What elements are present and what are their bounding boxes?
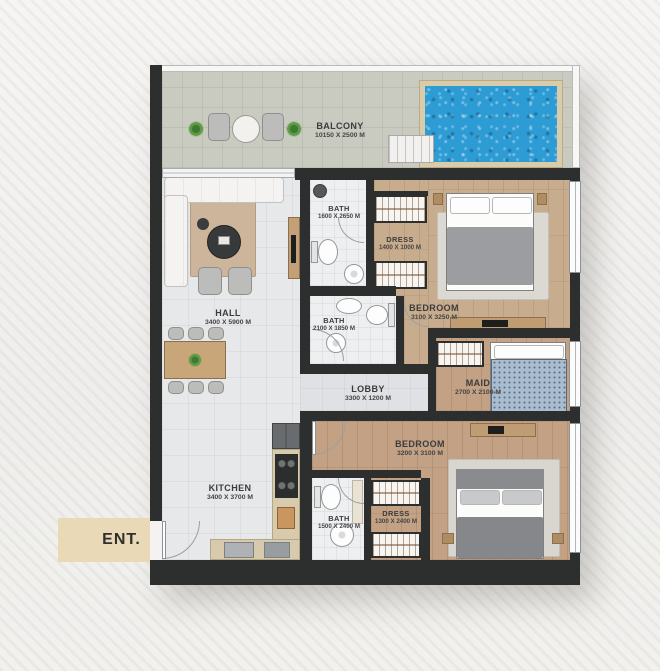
- wall: [300, 364, 436, 374]
- sink-icon: [344, 264, 364, 284]
- wall: [310, 286, 396, 296]
- wall: [150, 65, 162, 521]
- entrance-opening: [150, 521, 162, 560]
- nightstand: [537, 193, 547, 205]
- patio-chair-icon: [208, 113, 230, 141]
- wall: [428, 338, 436, 411]
- nightstand: [433, 193, 443, 205]
- coffee-table-item-icon: [218, 236, 230, 245]
- wall: [366, 178, 374, 286]
- plant-icon: [188, 121, 204, 137]
- tv-icon: [291, 235, 296, 263]
- blanket: [447, 227, 533, 285]
- room-label-bedroom2: BEDROOM 3200 X 3100 M: [370, 439, 470, 459]
- wardrobe: [371, 532, 421, 558]
- room-label-bath1: BATH 1600 X 2650 M: [309, 204, 369, 221]
- toilet-icon: [321, 484, 341, 510]
- wardrobe: [436, 341, 484, 367]
- room-label-hall: HALL 3400 X 5900 M: [168, 308, 288, 328]
- room-label-bath2: BATH 2100 X 1850 M: [299, 316, 369, 333]
- toilet-icon: [311, 241, 318, 263]
- balcony-parapet-right: [572, 65, 580, 168]
- wall: [300, 411, 570, 421]
- tv-icon: [482, 320, 508, 327]
- wall: [374, 191, 428, 196]
- window: [569, 181, 581, 273]
- dining-chair: [208, 327, 224, 340]
- pillow: [494, 345, 564, 359]
- dining-chair: [168, 381, 184, 394]
- toilet-icon: [314, 486, 321, 508]
- wardrobe: [374, 195, 427, 223]
- headboard: [456, 469, 544, 489]
- dishwasher-icon: [264, 542, 290, 558]
- wall-sink-icon: [313, 184, 327, 198]
- dining-chair: [208, 381, 224, 394]
- blanket: [457, 517, 543, 558]
- armchair: [198, 267, 222, 295]
- patio-table-icon: [232, 115, 260, 143]
- window: [569, 341, 581, 407]
- wall: [295, 168, 580, 180]
- dining-chair: [168, 327, 184, 340]
- wall: [300, 421, 312, 560]
- sliding-door: [162, 168, 295, 178]
- toilet-icon: [318, 239, 338, 265]
- room-label-bath3: BATH 1500 X 2400 M: [309, 514, 369, 531]
- pool: [420, 81, 562, 167]
- room-label-balcony: BALCONY 10150 X 2500 M: [280, 121, 400, 141]
- pillow: [492, 197, 532, 214]
- stool: [552, 533, 564, 544]
- floor-plan: BALCONY 10150 X 2500 M HALL 3400 X 5900 …: [150, 65, 580, 585]
- sofa: [164, 195, 188, 287]
- pillow: [460, 490, 500, 505]
- dining-chair: [188, 327, 204, 340]
- pillow: [502, 490, 542, 505]
- fridge-icon: [272, 423, 300, 449]
- wall: [428, 328, 570, 338]
- table-plant-icon: [188, 353, 202, 367]
- wardrobe: [371, 480, 421, 506]
- room-label-kitchen: KITCHEN 3400 X 3700 M: [170, 483, 290, 503]
- dining-chair: [188, 381, 204, 394]
- counter-item-icon: [277, 507, 295, 529]
- entrance-label: ENT.: [102, 531, 141, 549]
- sink-icon: [336, 298, 362, 314]
- window: [569, 423, 581, 553]
- door-leaf: [312, 421, 316, 455]
- pillow: [450, 197, 490, 214]
- room-label-dress2: DRESS 1300 X 2400 M: [366, 509, 426, 526]
- wardrobe: [374, 261, 427, 289]
- wall: [312, 470, 421, 478]
- room-label-maid: MAID 2700 X 2100 M: [428, 378, 528, 398]
- armchair: [228, 267, 252, 295]
- balcony-parapet-top: [150, 65, 580, 72]
- stool: [442, 533, 454, 544]
- kitchen-sink-icon: [224, 542, 254, 558]
- tv-icon: [488, 426, 504, 434]
- room-label-dress1: DRESS 1400 X 1000 M: [370, 235, 430, 252]
- entrance-door-leaf: [162, 521, 166, 559]
- wall: [150, 560, 580, 585]
- room-label-bedroom1: BEDROOM 3100 X 3250 M: [384, 303, 484, 323]
- decor-ball-icon: [197, 218, 209, 230]
- room-label-lobby: LOBBY 3300 X 1200 M: [308, 384, 428, 404]
